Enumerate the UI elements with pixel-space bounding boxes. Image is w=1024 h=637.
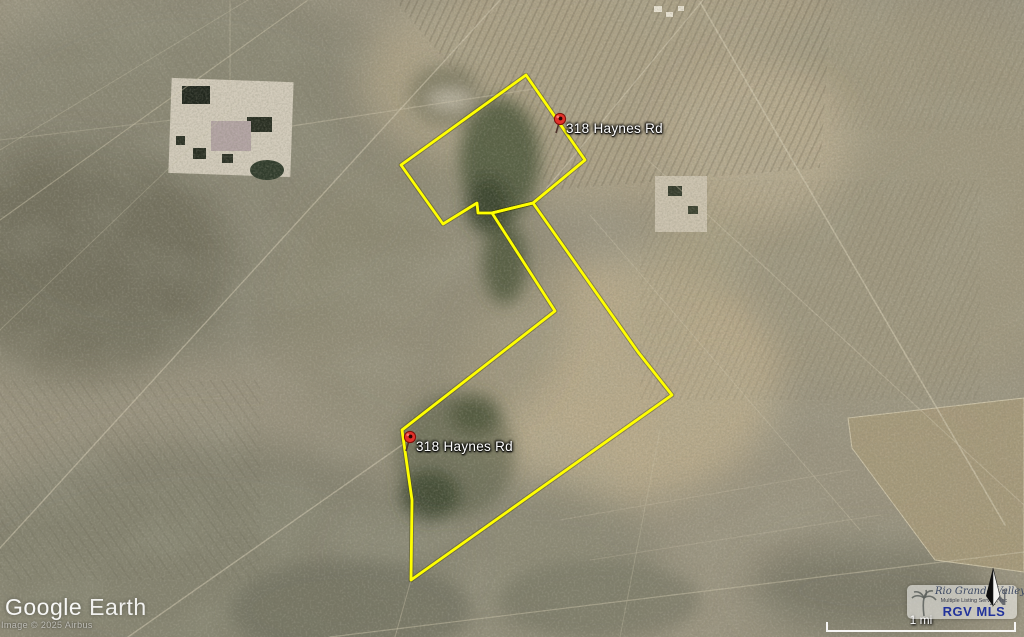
satellite-map-canvas[interactable]: 318 Haynes Rd 318 Haynes Rd GoogleEarth … [0,0,1024,637]
north-arrow-icon [980,566,1006,612]
imagery-attribution: Image © 2025 Airbus [1,620,93,630]
map-pin-2[interactable]: 318 Haynes Rd [400,426,570,456]
map-pin-1[interactable]: 318 Haynes Rd [550,108,720,138]
scale-bar: 1 mi [826,622,1016,632]
marker-label: 318 Haynes Rd [566,122,663,135]
marker-label: 318 Haynes Rd [416,440,513,453]
logo-word-google: Google [5,594,82,620]
google-earth-logo: GoogleEarth [5,594,147,621]
logo-word-earth: Earth [89,594,146,620]
satellite-imagery [0,0,1024,637]
